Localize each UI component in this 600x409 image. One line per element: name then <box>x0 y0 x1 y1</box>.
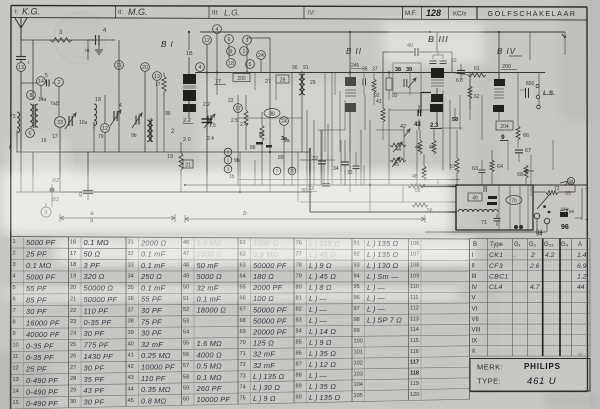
svg-text:73: 73 <box>240 373 246 379</box>
svg-text:25 PF: 25 PF <box>25 364 47 373</box>
svg-text:78: 78 <box>296 262 302 268</box>
svg-text:117: 117 <box>410 360 419 366</box>
svg-text:1.4: 1.4 <box>577 252 587 259</box>
svg-text:1.5: 1.5 <box>209 123 216 129</box>
svg-text:8: 8 <box>30 93 33 99</box>
svg-text:89: 89 <box>296 383 302 389</box>
svg-text:63: 63 <box>240 262 246 268</box>
svg-text:64: 64 <box>240 273 246 279</box>
svg-text:48: 48 <box>183 262 189 268</box>
svg-text:5: 5 <box>45 73 48 79</box>
svg-text:47: 47 <box>429 145 435 151</box>
svg-text:V: V <box>472 296 476 302</box>
svg-text:2.5: 2.5 <box>231 118 238 124</box>
svg-text:0-35 PF: 0-35 PF <box>26 341 54 350</box>
svg-text:0-35 PF: 0-35 PF <box>84 318 112 327</box>
svg-text:75 PF: 75 PF <box>141 317 162 326</box>
svg-text:4.7: 4.7 <box>530 284 540 291</box>
svg-text:2: 2 <box>227 150 230 155</box>
svg-text:44: 44 <box>128 387 134 393</box>
svg-text:II: II <box>472 264 476 270</box>
svg-text:32 mF: 32 mF <box>253 350 275 359</box>
svg-text:0-490 PF: 0-490 PF <box>26 399 58 408</box>
svg-text:57: 57 <box>183 363 189 369</box>
svg-text:K.G.: K.G. <box>22 7 40 17</box>
svg-text:2.6: 2.6 <box>529 263 540 270</box>
svg-text:17: 17 <box>52 134 58 140</box>
svg-text:62: 62 <box>474 94 480 100</box>
svg-text:L ) —: L ) — <box>309 305 327 314</box>
svg-text:102: 102 <box>354 360 363 366</box>
svg-text:50000 PF: 50000 PF <box>253 316 287 325</box>
svg-text:32 mF: 32 mF <box>141 340 163 349</box>
svg-text:34: 34 <box>569 179 574 184</box>
svg-text:L ) 9 Ω: L ) 9 Ω <box>309 338 332 347</box>
svg-text:L ) —: L ) — <box>309 371 327 380</box>
svg-text:2: 2 <box>13 251 16 257</box>
svg-text:43 PF: 43 PF <box>84 386 105 395</box>
svg-text:7: 7 <box>276 169 279 174</box>
svg-text:118: 118 <box>410 370 419 376</box>
svg-text:CF3: CF3 <box>489 263 503 270</box>
svg-text:70: 70 <box>240 340 246 346</box>
svg-text:30 PF: 30 PF <box>84 329 105 338</box>
svg-text:650: 650 <box>526 81 535 87</box>
svg-text:3: 3 <box>13 262 16 268</box>
svg-text:PHILIPS: PHILIPS <box>524 362 561 371</box>
svg-text:GOLFSCHAKELAAR: GOLFSCHAKELAAR <box>488 9 577 18</box>
svg-text:86: 86 <box>296 350 302 356</box>
svg-text:33: 33 <box>128 262 134 268</box>
svg-text:90: 90 <box>292 65 298 71</box>
svg-text:98: 98 <box>354 317 360 323</box>
svg-text:108: 108 <box>410 263 419 269</box>
svg-text:CL4: CL4 <box>489 284 503 291</box>
svg-text:64: 64 <box>497 164 503 170</box>
svg-text:20: 20 <box>142 65 148 71</box>
svg-text:CBC1: CBC1 <box>489 274 509 281</box>
svg-text:101: 101 <box>354 350 363 356</box>
svg-text:L ) 35 Ω: L ) 35 Ω <box>309 382 336 391</box>
svg-text:1: 1 <box>13 239 16 245</box>
svg-text:320 Ω: 320 Ω <box>84 272 105 281</box>
svg-text:0.1 MΩ: 0.1 MΩ <box>26 261 51 270</box>
svg-text:−: − <box>585 186 589 192</box>
svg-text:Type: Type <box>490 242 504 248</box>
svg-text:L ) 35 Ω: L ) 35 Ω <box>309 349 336 358</box>
svg-text:260 PF: 260 PF <box>196 384 222 393</box>
svg-text:2.0: 2.0 <box>183 137 191 143</box>
svg-text:72: 72 <box>240 362 246 368</box>
svg-text:10000 PF: 10000 PF <box>197 395 231 404</box>
svg-text:120: 120 <box>410 392 419 398</box>
svg-text:63: 63 <box>472 166 478 172</box>
svg-text:4: 4 <box>119 103 122 109</box>
svg-text:I:: I: <box>15 10 19 16</box>
svg-text:12: 12 <box>13 366 19 372</box>
svg-text:5000 PF: 5000 PF <box>26 272 56 281</box>
svg-text:0.35 MΩ: 0.35 MΩ <box>141 385 171 394</box>
svg-text:94: 94 <box>536 232 542 238</box>
svg-text:57: 57 <box>450 164 456 170</box>
svg-text:200: 200 <box>502 64 511 70</box>
svg-text:i: i <box>28 60 29 66</box>
svg-text:49: 49 <box>183 274 189 280</box>
svg-text:14: 14 <box>13 389 19 395</box>
svg-text:36: 36 <box>362 67 368 73</box>
svg-text:200: 200 <box>237 76 246 82</box>
svg-text:14: 14 <box>38 79 44 85</box>
svg-text:27: 27 <box>265 79 271 85</box>
svg-text:+: + <box>585 218 589 224</box>
svg-text:0.8 MΩ: 0.8 MΩ <box>141 396 166 405</box>
svg-text:16: 16 <box>41 138 47 144</box>
svg-text:6: 6 <box>228 37 231 43</box>
svg-text:M.F.: M.F. <box>405 10 417 17</box>
svg-text:15: 15 <box>13 400 19 406</box>
svg-text:IX: IX <box>472 338 478 344</box>
svg-text:3: 3 <box>246 38 249 44</box>
svg-text:82: 82 <box>296 306 302 312</box>
svg-text:204: 204 <box>500 124 509 130</box>
svg-text:L ) SP 7 Ω: L ) SP 7 Ω <box>367 315 402 324</box>
svg-text:L ) 12 Ω: L ) 12 Ω <box>309 360 336 369</box>
svg-text:30: 30 <box>70 399 76 405</box>
svg-text:35 PF: 35 PF <box>84 375 105 384</box>
svg-text:45: 45 <box>128 398 134 404</box>
svg-text:5: 5 <box>249 62 252 68</box>
svg-text:33: 33 <box>57 120 63 126</box>
svg-text:22: 22 <box>70 308 76 314</box>
svg-text:43: 43 <box>414 122 421 128</box>
svg-text:89: 89 <box>278 155 284 161</box>
svg-text:42: 42 <box>128 364 134 370</box>
svg-text:0.5 MΩ: 0.5 MΩ <box>197 362 222 371</box>
svg-text:70: 70 <box>511 198 517 204</box>
svg-text:30 PF: 30 PF <box>26 307 47 316</box>
svg-text:30 PF: 30 PF <box>84 398 105 407</box>
svg-text:CK1: CK1 <box>489 252 503 259</box>
svg-text:72: 72 <box>554 186 560 192</box>
svg-text:13: 13 <box>154 74 160 80</box>
svg-text:28: 28 <box>70 376 76 382</box>
svg-text:75: 75 <box>240 395 246 401</box>
svg-text:VII: VII <box>472 317 480 323</box>
svg-text:7a|5: 7a|5 <box>50 101 60 107</box>
svg-text:94: 94 <box>354 273 360 279</box>
svg-text:5000 Ω: 5000 Ω <box>197 272 222 281</box>
svg-text:30 PF: 30 PF <box>84 363 105 372</box>
svg-text:105: 105 <box>354 393 363 399</box>
svg-text:53: 53 <box>183 318 189 324</box>
svg-text:17: 17 <box>155 82 161 88</box>
svg-text:0.25 MΩ: 0.25 MΩ <box>141 351 171 360</box>
svg-text:68: 68 <box>240 318 246 324</box>
svg-text:91: 91 <box>303 65 309 71</box>
svg-text:4000 Ω: 4000 Ω <box>197 350 222 359</box>
svg-text:30 PF: 30 PF <box>141 306 162 315</box>
svg-text:A: A <box>578 242 582 248</box>
svg-text:IV: IV <box>472 285 478 291</box>
svg-text:10: 10 <box>13 343 19 349</box>
svg-text:M.G.: M.G. <box>128 7 148 17</box>
svg-text:52: 52 <box>183 307 189 313</box>
svg-text:12: 12 <box>204 38 210 44</box>
svg-text:98: 98 <box>569 209 575 214</box>
svg-text:KC/s: KC/s <box>453 10 466 17</box>
svg-text:103: 103 <box>354 371 363 377</box>
svg-text:39: 39 <box>128 330 134 336</box>
svg-text:250 Ω: 250 Ω <box>140 272 162 281</box>
svg-text:1.2: 1.2 <box>577 274 587 281</box>
svg-text:119: 119 <box>410 381 419 387</box>
svg-text:L ) Sm —: L ) Sm — <box>367 272 399 281</box>
svg-text:44: 44 <box>395 147 401 153</box>
svg-text:37: 37 <box>372 67 378 73</box>
svg-text:67: 67 <box>525 148 531 154</box>
svg-text:22: 22 <box>228 98 234 104</box>
svg-text:2.2: 2.2 <box>203 102 210 108</box>
svg-text:38: 38 <box>128 319 134 325</box>
svg-text:19: 19 <box>70 274 76 280</box>
svg-text:0-490 PF: 0-490 PF <box>26 376 58 385</box>
svg-text:23: 23 <box>70 319 76 325</box>
svg-text:28: 28 <box>280 77 286 83</box>
svg-text:38: 38 <box>395 67 401 73</box>
svg-text:B II: B II <box>346 47 362 56</box>
svg-text:G₃₃: G₃₃ <box>544 242 554 248</box>
svg-text:10a: 10a <box>79 120 88 126</box>
svg-text:L ) 45 Ω: L ) 45 Ω <box>309 272 336 281</box>
svg-text:27: 27 <box>70 365 76 371</box>
svg-text:112: 112 <box>410 306 419 312</box>
svg-text:18: 18 <box>95 97 101 103</box>
svg-text:66: 66 <box>523 133 529 139</box>
svg-text:9a: 9a <box>284 138 290 144</box>
svg-text:1.6 MΩ: 1.6 MΩ <box>197 339 222 348</box>
svg-text:30 PF: 30 PF <box>141 329 162 338</box>
svg-text:180 Ω: 180 Ω <box>253 272 274 281</box>
svg-text:9: 9 <box>230 49 233 55</box>
svg-text:II:: II: <box>118 10 123 16</box>
svg-text:m: m <box>85 48 90 54</box>
svg-text:24: 24 <box>281 119 287 125</box>
svg-text:2: 2 <box>58 80 61 86</box>
svg-text:44: 44 <box>577 284 585 291</box>
svg-text:0-490 PF: 0-490 PF <box>26 387 58 396</box>
svg-text:3: 3 <box>227 167 230 172</box>
svg-text:6.9: 6.9 <box>577 263 587 270</box>
svg-text:115: 115 <box>410 338 419 344</box>
svg-text:L ) —: L ) — <box>309 316 327 325</box>
svg-text:96: 96 <box>561 224 569 231</box>
svg-text:88: 88 <box>296 372 302 378</box>
svg-text:58: 58 <box>183 374 189 380</box>
svg-text:109: 109 <box>410 273 419 279</box>
svg-text:L.S.: L.S. <box>543 90 555 97</box>
svg-text:125 Ω: 125 Ω <box>253 339 274 348</box>
svg-text:97: 97 <box>354 306 360 312</box>
svg-text:49: 49 <box>472 195 478 201</box>
svg-text:32: 32 <box>312 156 318 162</box>
svg-text:3 PF: 3 PF <box>84 261 101 270</box>
svg-text:50 Ω: 50 Ω <box>84 249 101 258</box>
svg-text:7: 7 <box>13 308 16 314</box>
svg-text:55: 55 <box>183 341 189 347</box>
svg-text:99: 99 <box>354 328 360 334</box>
svg-text:41: 41 <box>376 99 382 105</box>
svg-text:6: 6 <box>9 145 12 151</box>
svg-text:113: 113 <box>410 316 419 322</box>
svg-text:B I: B I <box>161 40 174 49</box>
svg-text:46: 46 <box>415 145 421 151</box>
svg-text:19: 19 <box>167 154 173 160</box>
svg-text:40000 PF: 40000 PF <box>26 330 60 339</box>
svg-text:39: 39 <box>406 67 412 73</box>
svg-text:34: 34 <box>128 274 134 280</box>
svg-text:9: 9 <box>501 134 505 141</box>
svg-text:71: 71 <box>481 220 487 226</box>
svg-text:100: 100 <box>354 339 363 345</box>
svg-text:9b: 9b <box>131 133 137 139</box>
svg-text:21: 21 <box>185 162 191 168</box>
svg-text:VIII: VIII <box>472 328 481 334</box>
svg-text:41: 41 <box>128 353 134 359</box>
svg-text:L ) 135 Ω: L ) 135 Ω <box>309 393 341 402</box>
svg-text:Gr: Gr <box>578 352 584 357</box>
svg-text:74: 74 <box>240 384 246 390</box>
svg-text:MERK:: MERK: <box>477 363 503 372</box>
svg-text:0.1 MΩ: 0.1 MΩ <box>197 373 222 382</box>
svg-text:9‖: 9‖ <box>165 111 170 117</box>
svg-text:128: 128 <box>426 8 441 18</box>
svg-text:42: 42 <box>400 124 406 130</box>
svg-text:34: 34 <box>333 166 339 172</box>
svg-text:L ) 9 Ω: L ) 9 Ω <box>253 394 276 403</box>
svg-text:67: 67 <box>240 307 246 313</box>
svg-text:13: 13 <box>13 377 19 383</box>
svg-text:84: 84 <box>296 328 302 334</box>
svg-text:93: 93 <box>354 262 360 268</box>
svg-text:6.0: 6.0 <box>456 78 463 84</box>
svg-text:17: 17 <box>70 251 76 257</box>
svg-text:14a: 14a <box>38 97 47 103</box>
svg-text:12: 12 <box>102 126 108 132</box>
svg-text:13: 13 <box>18 65 24 71</box>
svg-text:29: 29 <box>310 80 316 86</box>
svg-text:0.1 MΩ: 0.1 MΩ <box>84 238 109 247</box>
svg-text:20000 PF: 20000 PF <box>252 327 287 336</box>
svg-text:775 PF: 775 PF <box>84 341 109 350</box>
svg-text:73: 73 <box>10 114 16 120</box>
svg-text:16000 PF: 16000 PF <box>26 318 60 327</box>
svg-text:L ) 14 Ω: L ) 14 Ω <box>309 327 336 336</box>
svg-text:L ) —: L ) — <box>367 305 385 314</box>
svg-text:1: 1 <box>227 158 230 163</box>
svg-text:40: 40 <box>128 341 134 347</box>
svg-text:G₂: G₂ <box>529 242 537 248</box>
svg-text:116: 116 <box>410 349 419 355</box>
svg-text:L.G.: L.G. <box>224 7 240 17</box>
svg-text:87: 87 <box>296 361 302 367</box>
svg-text:9: 9 <box>13 331 16 337</box>
svg-text:8: 8 <box>13 320 16 326</box>
svg-text:2.4: 2.4 <box>207 136 214 142</box>
svg-text:4: 4 <box>199 65 202 71</box>
svg-text:85: 85 <box>296 339 302 345</box>
svg-text:43: 43 <box>128 375 134 381</box>
svg-text:110 PF: 110 PF <box>141 374 166 383</box>
svg-text:25 PF: 25 PF <box>25 249 47 258</box>
svg-text:461 U: 461 U <box>527 376 556 387</box>
svg-text:25: 25 <box>70 342 76 348</box>
svg-text:III:: III: <box>212 10 219 16</box>
svg-text:1430 PF: 1430 PF <box>84 352 114 361</box>
svg-text:11: 11 <box>13 354 19 360</box>
svg-text:93: 93 <box>392 93 398 99</box>
svg-text:68: 68 <box>517 172 523 178</box>
svg-text:37: 37 <box>128 307 134 313</box>
svg-text:77: 77 <box>215 79 221 85</box>
svg-text:29: 29 <box>70 388 76 394</box>
svg-text:L ) 30 Ω: L ) 30 Ω <box>253 383 280 392</box>
svg-text:6: 6 <box>29 131 32 137</box>
svg-text:4: 4 <box>216 27 219 33</box>
svg-text:4: 4 <box>13 274 16 280</box>
svg-text:18: 18 <box>70 262 76 268</box>
svg-text:TYPE:: TYPE: <box>477 377 501 386</box>
svg-text:11: 11 <box>116 63 121 69</box>
svg-text:16: 16 <box>70 239 76 245</box>
svg-text:245: 245 <box>351 63 360 69</box>
svg-text:24: 24 <box>70 331 76 337</box>
svg-text:32 mF: 32 mF <box>253 361 275 370</box>
svg-text:79: 79 <box>296 273 302 279</box>
svg-text:G₄: G₄ <box>561 242 569 248</box>
svg-text:69: 69 <box>240 329 246 335</box>
svg-text:1B: 1B <box>186 51 193 57</box>
svg-text:54: 54 <box>183 329 189 335</box>
svg-text:83: 83 <box>296 317 302 323</box>
svg-text:III: III <box>472 274 477 280</box>
svg-text:B: B <box>473 242 477 248</box>
svg-text:79: 79 <box>98 134 104 140</box>
svg-text:G₁: G₁ <box>514 242 521 248</box>
svg-text:59: 59 <box>183 385 189 391</box>
svg-text:5000 PF: 5000 PF <box>26 238 56 247</box>
svg-text:26: 26 <box>70 353 76 359</box>
svg-text:IV:: IV: <box>308 11 315 17</box>
svg-text:110 PF: 110 PF <box>84 306 109 315</box>
svg-text:B IV: B IV <box>497 47 516 56</box>
svg-text:104: 104 <box>354 382 363 388</box>
svg-text:61: 61 <box>474 66 480 72</box>
svg-text:18: 18 <box>228 61 234 67</box>
svg-text:.: . <box>514 252 516 259</box>
svg-text:L ) 135 Ω: L ) 135 Ω <box>253 372 285 381</box>
svg-text:9b: 9b <box>234 158 240 164</box>
svg-text:2.2: 2.2 <box>183 118 191 124</box>
svg-text:1: 1 <box>243 49 246 55</box>
svg-text:86: 86 <box>250 145 256 151</box>
svg-text:18000 Ω: 18000 Ω <box>197 306 227 315</box>
svg-text:4.2: 4.2 <box>545 252 555 259</box>
svg-text:60: 60 <box>183 397 189 403</box>
svg-text:24: 24 <box>258 53 264 59</box>
svg-text:114: 114 <box>410 327 419 333</box>
svg-text:VI: VI <box>472 306 478 312</box>
svg-text:56: 56 <box>183 352 189 358</box>
